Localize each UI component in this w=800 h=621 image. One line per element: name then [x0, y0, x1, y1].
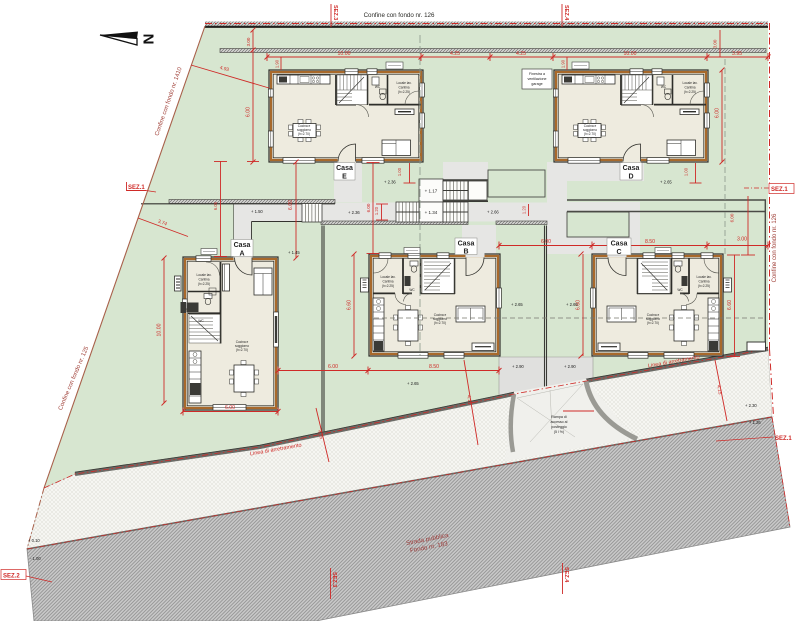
svg-text:3.00: 3.00: [246, 37, 251, 46]
svg-text:(h=2.25): (h=2.25): [684, 90, 696, 94]
svg-text:6.00: 6.00: [225, 405, 235, 411]
svg-text:WC: WC: [661, 85, 667, 89]
svg-text:6.60: 6.60: [727, 300, 733, 310]
svg-text:+ 1.45: + 1.45: [288, 250, 300, 255]
svg-text:(h=2.70): (h=2.70): [236, 348, 248, 352]
svg-text:Locale lav.: Locale lav.: [380, 275, 395, 279]
svg-text:Cantina: Cantina: [399, 86, 410, 90]
svg-text:+ 2.65: + 2.65: [566, 302, 578, 307]
svg-text:Casa: Casa: [611, 241, 628, 248]
svg-text:1.00: 1.00: [684, 167, 689, 176]
svg-text:6.60: 6.60: [347, 300, 353, 310]
svg-text:+ 2.65: + 2.65: [660, 180, 672, 185]
svg-text:Rampa di: Rampa di: [551, 415, 567, 419]
svg-text:6.05: 6.05: [213, 201, 218, 210]
svg-text:WC: WC: [409, 288, 415, 292]
svg-text:3.95: 3.95: [732, 51, 742, 57]
svg-text:8.50: 8.50: [429, 364, 439, 370]
svg-text:1.20: 1.20: [374, 206, 379, 215]
svg-text:+ 2.65: + 2.65: [407, 381, 419, 386]
svg-text:SEZ.4: SEZ.4: [563, 567, 569, 583]
svg-text:Finestra a: Finestra a: [529, 72, 545, 76]
svg-text:3.00: 3.00: [737, 237, 747, 243]
svg-text:C: C: [616, 249, 621, 256]
svg-text:SEZ.1: SEZ.1: [771, 187, 788, 193]
svg-text:Confine con fondo nr. 126: Confine con fondo nr. 126: [772, 213, 778, 282]
svg-text:WC: WC: [198, 319, 204, 323]
svg-text:6.00: 6.00: [288, 200, 294, 210]
svg-text:Locale lav.: Locale lav.: [396, 81, 411, 85]
svg-text:+ 1.26: + 1.26: [749, 420, 761, 425]
svg-text:+ 0.10: + 0.10: [28, 538, 40, 543]
svg-text:N: N: [140, 34, 157, 45]
svg-text:SEZ.1: SEZ.1: [775, 436, 792, 442]
svg-text:1.20: 1.20: [522, 205, 527, 214]
svg-text:6.00: 6.00: [541, 239, 551, 245]
svg-text:(5 l %): (5 l %): [554, 430, 564, 434]
svg-text:posteggio: posteggio: [551, 425, 567, 429]
svg-text:Casa: Casa: [623, 165, 640, 172]
svg-text:Cantina: Cantina: [699, 280, 710, 284]
svg-text:Cantina: Cantina: [685, 86, 696, 90]
svg-text:(h=2.70): (h=2.70): [647, 321, 659, 325]
svg-text:+ 2.36: + 2.36: [384, 180, 396, 185]
svg-text:Casa: Casa: [458, 241, 475, 248]
svg-text:3.00: 3.00: [713, 39, 718, 48]
svg-text:SEZ.3: SEZ.3: [332, 5, 338, 20]
svg-text:(h=2.25): (h=2.25): [198, 282, 210, 286]
svg-text:10.00: 10.00: [157, 323, 163, 336]
svg-text:Casa: Casa: [234, 242, 251, 249]
svg-text:Locale lav.: Locale lav.: [696, 275, 711, 279]
svg-text:Casa: Casa: [336, 165, 353, 172]
svg-text:1.00: 1.00: [397, 167, 402, 176]
svg-text:Locale lav.: Locale lav.: [682, 81, 697, 85]
svg-text:Confine con fondo nr. 126: Confine con fondo nr. 126: [364, 12, 435, 19]
svg-text:Cantina: Cantina: [199, 278, 210, 282]
svg-text:(h=2.70): (h=2.70): [584, 132, 596, 136]
svg-text:(h=2.25): (h=2.25): [398, 90, 410, 94]
svg-text:WC: WC: [677, 288, 683, 292]
svg-text:E: E: [342, 174, 347, 181]
svg-text:SEZ.4: SEZ.4: [563, 5, 569, 21]
svg-text:+ 2.36: + 2.36: [348, 210, 360, 215]
svg-text:6.00: 6.00: [366, 203, 371, 212]
svg-text:+ 1.34: + 1.34: [425, 210, 438, 215]
svg-text:+ 2.90: + 2.90: [564, 364, 576, 369]
svg-text:Locale lav.: Locale lav.: [196, 273, 211, 277]
svg-text:4.25: 4.25: [450, 51, 460, 57]
svg-text:garage: garage: [531, 82, 542, 86]
svg-text:+ 2.90: + 2.90: [512, 364, 524, 369]
svg-text:+ 2.66: + 2.66: [487, 210, 499, 215]
svg-text:4.25: 4.25: [516, 51, 526, 57]
svg-text:+ 1.17: + 1.17: [425, 189, 438, 194]
svg-text:(h=2.25): (h=2.25): [698, 284, 710, 288]
svg-text:6.00: 6.00: [730, 213, 735, 222]
svg-text:ventilazione: ventilazione: [528, 77, 547, 81]
svg-text:10.00: 10.00: [624, 51, 637, 57]
svg-text:+ 1.50: + 1.50: [251, 209, 263, 214]
svg-text:Cantina: Cantina: [383, 280, 394, 284]
svg-text:B: B: [463, 249, 468, 256]
svg-text:(h=2.70): (h=2.70): [434, 321, 446, 325]
svg-text:10.00: 10.00: [338, 51, 351, 57]
svg-text:6.00: 6.00: [328, 364, 338, 370]
svg-text:+ 2.30: + 2.30: [745, 403, 757, 408]
svg-text:+ 2.65: + 2.65: [511, 302, 523, 307]
svg-text:8.50: 8.50: [645, 239, 655, 245]
svg-text:WC: WC: [375, 85, 381, 89]
svg-text:6.00: 6.00: [715, 108, 721, 118]
svg-text:D: D: [628, 174, 633, 181]
svg-text:SEZ.2: SEZ.2: [3, 574, 20, 580]
svg-text:(h=2.25): (h=2.25): [382, 284, 394, 288]
svg-text:1.90: 1.90: [561, 59, 566, 68]
svg-text:A: A: [239, 251, 244, 258]
svg-text:accesso al: accesso al: [551, 420, 568, 424]
svg-text:1.90: 1.90: [275, 59, 280, 68]
svg-text:- 1.00: - 1.00: [30, 556, 41, 561]
svg-text:SEZ.3: SEZ.3: [331, 572, 337, 587]
svg-text:(h=2.70): (h=2.70): [298, 132, 310, 136]
svg-text:6.00: 6.00: [246, 107, 252, 117]
